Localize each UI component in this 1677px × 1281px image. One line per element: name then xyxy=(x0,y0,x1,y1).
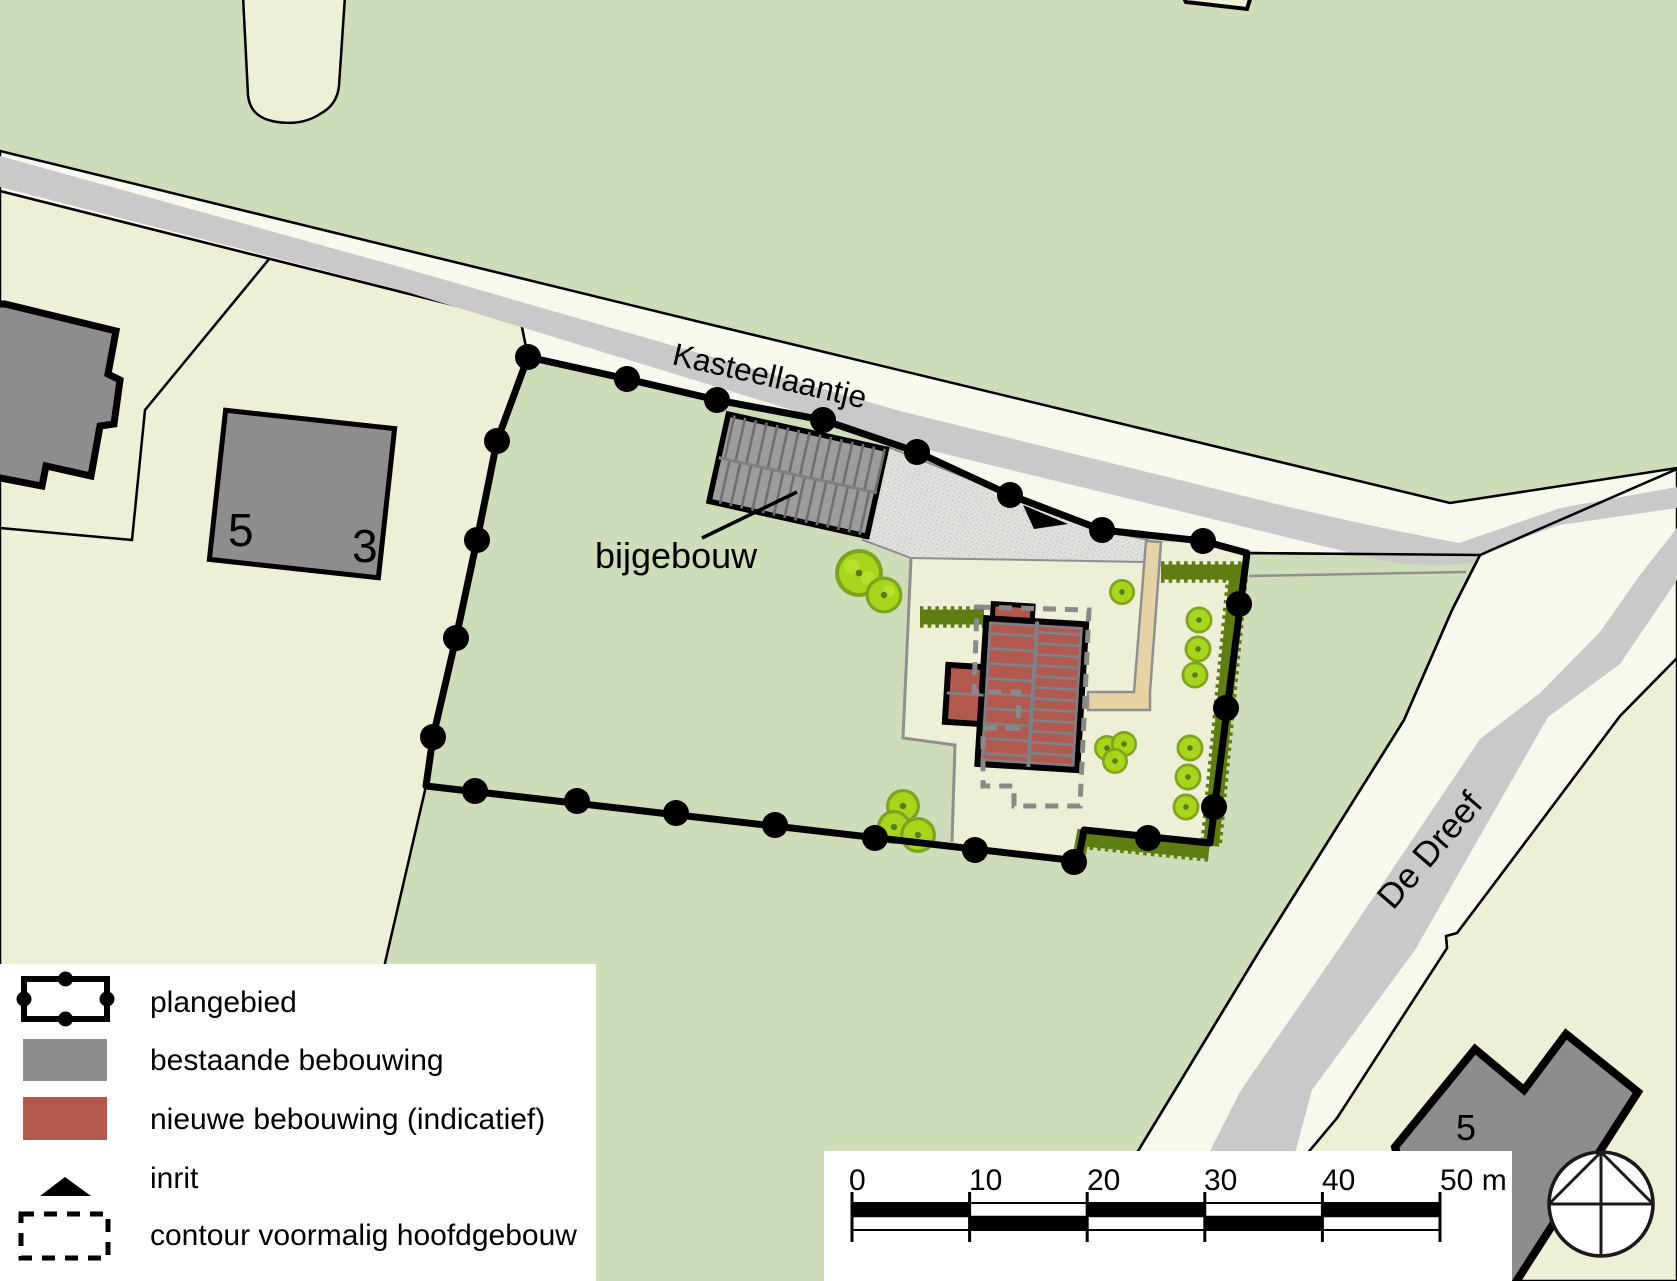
svg-text:30: 30 xyxy=(1204,1164,1237,1197)
svg-text:plangebied: plangebied xyxy=(150,986,297,1019)
svg-text:inrit: inrit xyxy=(150,1162,199,1195)
svg-text:nieuwe bebouwing (indicatief): nieuwe bebouwing (indicatief) xyxy=(150,1103,545,1136)
svg-text:bestaande bebouwing: bestaande bebouwing xyxy=(150,1044,444,1077)
svg-text:40: 40 xyxy=(1322,1164,1355,1197)
svg-text:3: 3 xyxy=(352,520,378,572)
svg-text:bijgebouw: bijgebouw xyxy=(595,535,758,576)
svg-text:5: 5 xyxy=(228,504,254,556)
svg-text:contour voormalig hoofdgebouw: contour voormalig hoofdgebouw xyxy=(150,1219,577,1252)
svg-text:5: 5 xyxy=(1456,1107,1476,1148)
svg-text:20: 20 xyxy=(1087,1164,1120,1197)
svg-text:50 m: 50 m xyxy=(1440,1164,1507,1197)
svg-text:10: 10 xyxy=(969,1164,1002,1197)
